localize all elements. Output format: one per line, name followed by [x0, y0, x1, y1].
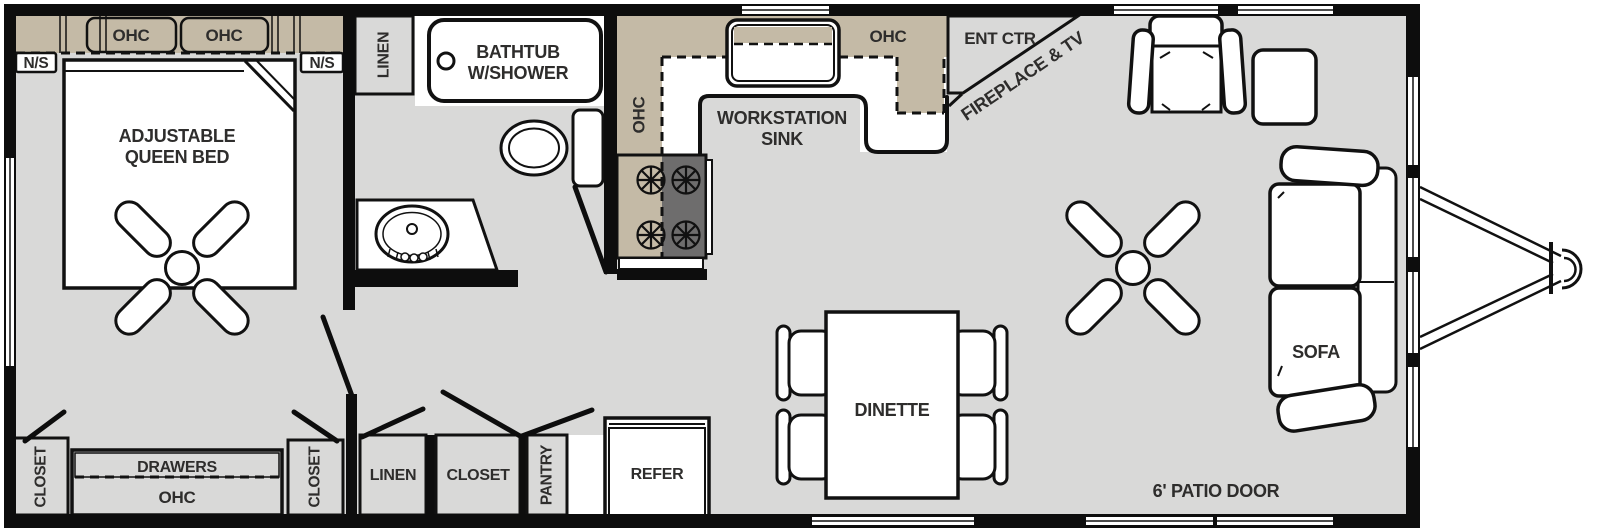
ent-ctr-label: ENT CTR [964, 29, 1036, 48]
patio-door-opening [1086, 517, 1333, 525]
hall-linen-label: LINEN [370, 467, 417, 484]
kitchen-ohc-top-label: OHC [870, 27, 907, 46]
recliner-chair [1128, 16, 1246, 114]
bedroom-bath-wall [343, 16, 355, 310]
pantry-label: PANTRY [539, 444, 556, 505]
hitch-coupler [1562, 250, 1581, 288]
ohc-right-label: OHC [206, 26, 243, 45]
drawers-label: DRAWERS [137, 459, 217, 476]
drawers-ohc-label: OHC [159, 488, 196, 507]
refer-label: REFER [631, 466, 684, 483]
bathtub-label-line1: BATHTUB [476, 42, 560, 62]
ns-left-label: N/S [24, 55, 49, 72]
floor-plan: OHC OHC N/S N/S ADJUSTABLE QUEEN BED LIN… [0, 0, 1600, 531]
counter-gap [567, 435, 605, 515]
kitchen-ohc-block [897, 57, 944, 113]
bedroom-ohc-strip [16, 16, 343, 53]
bath-linen-label: LINEN [376, 32, 393, 79]
trailer-hitch [1420, 187, 1581, 349]
sofa-label: SOFA [1292, 342, 1340, 362]
dinette-label: DINETTE [855, 400, 930, 420]
kitchen-counter-left [662, 57, 700, 155]
workstation-sink-label-line1: WORKSTATION [717, 108, 847, 128]
hall-closet-label: CLOSET [446, 467, 510, 484]
workstation-sink-label-line2: SINK [761, 129, 803, 149]
bathroom-vanity [357, 200, 497, 270]
ohc-left-label: OHC [113, 26, 150, 45]
bath-sink-wall [343, 270, 518, 287]
bathtub-label-line2: W/SHOWER [468, 63, 569, 83]
kitchen-sink [727, 20, 839, 86]
sofa [1270, 146, 1396, 434]
stove [617, 155, 712, 280]
closet-right-label: CLOSET [307, 446, 324, 508]
closet-left-label: CLOSET [33, 446, 50, 508]
patio-door-label: 6' PATIO DOOR [1153, 481, 1280, 501]
bed-label-line2: QUEEN BED [125, 147, 230, 167]
side-table [1253, 50, 1316, 124]
bath-kitchen-wall [604, 16, 617, 274]
bedroom-lower-wall [346, 394, 357, 515]
ns-right-label: N/S [310, 55, 335, 72]
floor-plan-svg: OHC OHC N/S N/S ADJUSTABLE QUEEN BED LIN… [0, 0, 1600, 531]
kitchen-ohc-side-label: OHC [630, 97, 649, 134]
bed-label-line1: ADJUSTABLE [119, 126, 236, 146]
